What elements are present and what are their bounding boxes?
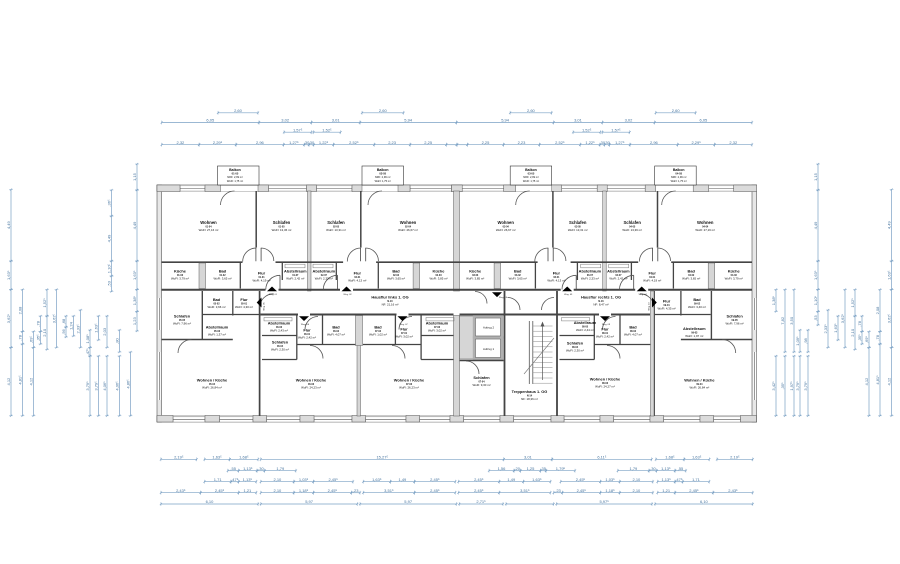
svg-text:3,42⁵: 3,42⁵ <box>771 381 776 391</box>
svg-text:WoFl: 24,27 m²: WoFl: 24,27 m² <box>595 385 615 389</box>
svg-text:Wohnen / Küche: Wohnen / Küche <box>684 378 715 383</box>
svg-text:Wohnen: Wohnen <box>497 220 514 225</box>
svg-text:WoFl: 2,42 m²: WoFl: 2,42 m² <box>609 277 627 281</box>
svg-text:3,62⁵: 3,62⁵ <box>6 313 11 323</box>
svg-text:3,01: 3,01 <box>574 118 583 123</box>
svg-text:4,81⁵: 4,81⁵ <box>875 375 880 385</box>
svg-text:Flur: Flur <box>649 271 657 276</box>
svg-text:1,71: 1,71 <box>214 477 223 482</box>
svg-text:3,51⁵: 3,51⁵ <box>384 488 394 493</box>
svg-text:WoFl: 4,35 m²: WoFl: 4,35 m² <box>658 307 676 311</box>
svg-text:Abstellraum: Abstellraum <box>579 269 602 274</box>
svg-text:4,12: 4,12 <box>29 377 34 386</box>
svg-text:3,62⁵: 3,62⁵ <box>840 313 845 323</box>
svg-text:2,23: 2,23 <box>388 140 397 145</box>
svg-text:2,45⁵: 2,45⁵ <box>430 477 440 482</box>
svg-text:2,10: 2,10 <box>633 488 642 493</box>
svg-text:Wng. 03: Wng. 03 <box>564 294 573 296</box>
svg-text:1,63⁵: 1,63⁵ <box>94 323 99 333</box>
svg-text:,47⁵: ,47⁵ <box>85 348 90 356</box>
svg-text:,23: ,23 <box>353 488 359 493</box>
svg-text:1,52⁵: 1,52⁵ <box>582 127 592 132</box>
svg-text:Aufzug 2: Aufzug 2 <box>483 326 494 330</box>
svg-text:1,38⁵: 1,38⁵ <box>771 295 776 305</box>
svg-text:1,56: 1,56 <box>498 466 507 471</box>
svg-text:Treppenhaus 1. OG: Treppenhaus 1. OG <box>512 389 548 394</box>
svg-text:2,43⁵: 2,43⁵ <box>176 488 186 493</box>
svg-text:1,03⁵: 1,03⁵ <box>605 477 615 482</box>
svg-text:WoFl: 7,96 m²: WoFl: 7,96 m² <box>726 322 744 326</box>
svg-text:WoFl: 1,75 m²: WoFl: 1,75 m² <box>375 179 391 183</box>
svg-text:WoFl: 2,44 m²: WoFl: 2,44 m² <box>576 328 594 332</box>
svg-text:WoFl: 4,07 m²: WoFl: 4,07 m² <box>624 333 642 337</box>
svg-text:Balkon: Balkon <box>377 168 389 172</box>
svg-text:Wng. 02: Wng. 02 <box>343 294 352 296</box>
svg-text:1,57⁵: 1,57⁵ <box>293 127 303 132</box>
svg-text:Wng. 10: Wng. 10 <box>649 302 651 311</box>
svg-text:Balkon: Balkon <box>229 168 241 172</box>
svg-text:2,33⁵: 2,33⁵ <box>823 324 828 334</box>
svg-text:,53: ,53 <box>813 315 818 321</box>
svg-text:1,71: 1,71 <box>692 477 701 482</box>
svg-text:2,10: 2,10 <box>274 488 283 493</box>
svg-text:1,63⁵: 1,63⁵ <box>532 477 542 482</box>
svg-text:Wng. 01: Wng. 01 <box>269 294 278 296</box>
svg-text:6,10: 6,10 <box>700 499 709 504</box>
svg-text:2,33⁵: 2,33⁵ <box>76 324 81 334</box>
svg-text:2,29⁵: 2,29⁵ <box>213 140 223 145</box>
svg-text:4,49: 4,49 <box>107 234 112 243</box>
svg-text:WoFl: 9,30 m²: WoFl: 9,30 m² <box>472 383 490 387</box>
svg-text:2,32: 2,32 <box>729 140 738 145</box>
svg-text:2,45⁵: 2,45⁵ <box>328 488 338 493</box>
svg-text:2,45⁵: 2,45⁵ <box>474 477 484 482</box>
svg-text:NRF: 2,99 m²: NRF: 2,99 m² <box>375 175 391 179</box>
svg-text:Flur: Flur <box>354 271 362 276</box>
svg-text:WoFl: 4,13 m²: WoFl: 4,13 m² <box>348 279 366 283</box>
svg-text:3,50: 3,50 <box>789 316 794 325</box>
svg-text:1,63⁵: 1,63⁵ <box>132 270 137 280</box>
svg-text:,69⁵: ,69⁵ <box>864 336 869 344</box>
svg-text:4,81⁵: 4,81⁵ <box>18 375 23 385</box>
svg-text:2,32: 2,32 <box>177 140 186 145</box>
svg-text:2,71⁵: 2,71⁵ <box>476 499 486 504</box>
svg-text:WoFl: 4,07 m²: WoFl: 4,07 m² <box>327 333 345 337</box>
svg-text:Wohnen: Wohnen <box>200 220 217 225</box>
svg-text:4,49: 4,49 <box>887 221 892 230</box>
svg-text:5,97: 5,97 <box>404 499 413 504</box>
svg-text:Flur: Flur <box>400 327 408 332</box>
svg-text:,30: ,30 <box>258 466 264 471</box>
svg-text:WoFl: 13,36 m²: WoFl: 13,36 m² <box>272 228 292 232</box>
svg-text:WoFl: 4,19 m²: WoFl: 4,19 m² <box>643 279 661 283</box>
svg-text:Aufzug 1: Aufzug 1 <box>483 347 494 351</box>
svg-text:Flur: Flur <box>601 327 609 332</box>
svg-text:1,10⁵: 1,10⁵ <box>813 295 818 305</box>
svg-text:6,10: 6,10 <box>206 499 215 504</box>
svg-text:2,60: 2,60 <box>527 108 536 113</box>
svg-text:WoFl: 2,42 m²: WoFl: 2,42 m² <box>596 335 614 339</box>
svg-text:,53: ,53 <box>107 280 112 286</box>
svg-text:,47⁵: ,47⁵ <box>231 477 239 482</box>
svg-text:1,79: 1,79 <box>276 466 285 471</box>
svg-text:Abstellraum: Abstellraum <box>683 326 706 331</box>
svg-text:Wohnen / Küche: Wohnen / Küche <box>590 377 621 382</box>
svg-text:2,45⁵: 2,45⁵ <box>577 488 587 493</box>
svg-text:Wohnen / Küche: Wohnen / Küche <box>394 378 425 383</box>
svg-text:,68: ,68 <box>61 318 66 324</box>
svg-text:,56: ,56 <box>61 328 66 334</box>
svg-text:3,01: 3,01 <box>524 454 533 459</box>
svg-text:Bad: Bad <box>374 325 382 330</box>
svg-text:2,25: 2,25 <box>424 140 433 145</box>
svg-text:1,52⁵: 1,52⁵ <box>322 127 332 132</box>
svg-text:NF: 18,36 m²: NF: 18,36 m² <box>521 397 538 401</box>
svg-text:1,49: 1,49 <box>399 477 408 482</box>
svg-text:2,45⁵: 2,45⁵ <box>689 488 699 493</box>
svg-text:2,45⁵: 2,45⁵ <box>474 488 484 493</box>
svg-text:WoFl: 3,85 m²: WoFl: 3,85 m² <box>429 277 447 281</box>
svg-text:WoFl: 2,30 m²: WoFl: 2,30 m² <box>271 348 289 352</box>
svg-text:1,63⁵: 1,63⁵ <box>6 270 11 280</box>
svg-text:1,09⁵: 1,09⁵ <box>795 336 800 346</box>
svg-text:Abstellraum: Abstellraum <box>426 321 449 326</box>
svg-text:Bad: Bad <box>514 269 522 274</box>
svg-text:Balkon: Balkon <box>673 168 685 172</box>
svg-text:Abstellraum: Abstellraum <box>607 269 630 274</box>
svg-text:2,19⁵: 2,19⁵ <box>174 454 184 459</box>
svg-text:WoFl: 2,42 m²: WoFl: 2,42 m² <box>298 336 316 340</box>
svg-text:Abstellraum: Abstellraum <box>268 321 291 326</box>
svg-text:WoFl: 27,16 m²: WoFl: 27,16 m² <box>199 228 219 232</box>
svg-text:WoFl: 2,30 m²: WoFl: 2,30 m² <box>566 349 584 353</box>
svg-text:Bad: Bad <box>693 297 701 302</box>
svg-text:1,18⁵: 1,18⁵ <box>605 488 615 493</box>
svg-text:1,15: 1,15 <box>132 172 137 181</box>
svg-text:WoFl: 3,40 m²: WoFl: 3,40 m² <box>688 305 706 309</box>
svg-text:6,11⁵: 6,11⁵ <box>597 454 606 459</box>
svg-text:Wng. 07: Wng. 07 <box>399 324 408 326</box>
svg-text:,69⁵: ,69⁵ <box>29 336 34 344</box>
svg-text:WoFl: 2,33 m²: WoFl: 2,33 m² <box>581 277 599 281</box>
svg-text:,35⁵: ,35⁵ <box>36 334 41 342</box>
svg-text:5,94: 5,94 <box>404 118 413 123</box>
svg-text:Küche: Küche <box>728 269 741 274</box>
svg-text:,80: ,80 <box>115 337 120 343</box>
svg-text:WoFl: 27,16 m²: WoFl: 27,16 m² <box>695 228 715 232</box>
svg-text:1,13⁵: 1,13⁵ <box>243 466 253 471</box>
svg-text:4,12: 4,12 <box>6 377 11 386</box>
svg-text:3,79⁵: 3,79⁵ <box>85 381 90 391</box>
svg-text:Schlafen: Schlafen <box>174 314 191 319</box>
svg-text:,78: ,78 <box>875 334 880 340</box>
svg-text:Wng. 09: Wng. 09 <box>602 324 611 326</box>
svg-text:,23: ,23 <box>555 488 561 493</box>
svg-text:Wng. 05: Wng. 05 <box>264 302 266 311</box>
svg-text:1,10⁵: 1,10⁵ <box>107 263 112 273</box>
svg-text:2,08: 2,08 <box>18 306 23 315</box>
svg-text:3,62⁵: 3,62⁵ <box>887 313 892 323</box>
svg-text:1,38⁵: 1,38⁵ <box>132 295 137 305</box>
svg-text:NF: 21,16 m²: NF: 21,16 m² <box>382 303 399 307</box>
svg-text:WoFl: 4,30 m²: WoFl: 4,30 m² <box>235 305 253 309</box>
svg-text:2,45⁵: 2,45⁵ <box>430 488 440 493</box>
svg-text:Bad: Bad <box>392 269 400 274</box>
svg-text:1,63⁵: 1,63⁵ <box>813 270 818 280</box>
svg-text:,35⁵: ,35⁵ <box>857 334 862 342</box>
svg-text:6,05: 6,05 <box>700 118 709 123</box>
svg-text:Abstellraum: Abstellraum <box>574 320 597 325</box>
svg-text:1,79: 1,79 <box>630 466 639 471</box>
svg-text:Küche: Küche <box>433 269 446 274</box>
svg-text:2,96: 2,96 <box>256 140 265 145</box>
svg-text:,78: ,78 <box>857 320 862 326</box>
svg-text:1,57⁵: 1,57⁵ <box>611 127 621 132</box>
svg-text:3,51⁵: 3,51⁵ <box>520 488 530 493</box>
svg-text:4,86⁵: 4,86⁵ <box>126 379 131 389</box>
svg-text:5,97⁵: 5,97⁵ <box>599 499 609 504</box>
svg-text:2,45⁵: 2,45⁵ <box>328 477 338 482</box>
svg-text:1,18⁵: 1,18⁵ <box>299 488 309 493</box>
svg-text:WoFl: 1,75 m²: WoFl: 1,75 m² <box>671 179 687 183</box>
svg-text:Flur: Flur <box>303 328 311 333</box>
svg-text:1,13⁵: 1,13⁵ <box>661 466 671 471</box>
svg-text:Bad: Bad <box>629 325 637 330</box>
svg-text:WoFl: 4,13 m²: WoFl: 4,13 m² <box>547 279 565 283</box>
svg-text:WoFl: 26,67 m²: WoFl: 26,67 m² <box>398 228 418 232</box>
svg-text:Küche: Küche <box>174 269 187 274</box>
svg-text:Schlafen: Schlafen <box>473 375 490 380</box>
svg-text:Flur: Flur <box>663 299 671 304</box>
svg-text:Schlafen: Schlafen <box>327 220 345 225</box>
svg-text:5,94: 5,94 <box>501 118 510 123</box>
svg-text:3,01: 3,01 <box>332 118 341 123</box>
svg-text:2,25: 2,25 <box>482 140 491 145</box>
svg-text:1,27⁵: 1,27⁵ <box>289 140 299 145</box>
svg-text:4,06⁵: 4,06⁵ <box>115 381 120 391</box>
svg-text:,55: ,55 <box>230 466 236 471</box>
svg-text:1,63⁵: 1,63⁵ <box>372 477 382 482</box>
svg-text:NF: 8,47 m²: NF: 8,47 m² <box>593 303 608 307</box>
svg-text:2,29⁵: 2,29⁵ <box>691 140 701 145</box>
svg-text:4,49: 4,49 <box>132 221 137 230</box>
svg-text:,78: ,78 <box>36 320 41 326</box>
svg-text:WoFl: 13,36 m²: WoFl: 13,36 m² <box>622 228 642 232</box>
svg-text:2,60: 2,60 <box>379 108 388 113</box>
svg-text:1,63⁵: 1,63⁵ <box>212 454 222 459</box>
svg-text:4,12: 4,12 <box>864 377 869 386</box>
svg-text:4,49: 4,49 <box>6 221 11 230</box>
svg-text:4,12: 4,12 <box>887 377 892 386</box>
svg-text:Bad: Bad <box>332 325 340 330</box>
svg-text:2,10: 2,10 <box>42 328 47 337</box>
svg-text:2,60: 2,60 <box>234 108 243 113</box>
svg-text:Schlafen: Schlafen <box>569 220 587 225</box>
svg-text:WoFl: 1,97 m²: WoFl: 1,97 m² <box>685 334 703 338</box>
svg-text:1,63⁵: 1,63⁵ <box>692 454 702 459</box>
svg-text:WoFl: 3,02 m²: WoFl: 3,02 m² <box>395 335 413 339</box>
svg-text:1,13⁵: 1,13⁵ <box>661 477 671 482</box>
svg-text:Wng. 04: Wng. 04 <box>639 294 648 296</box>
svg-text:01-05: 01-05 <box>232 172 239 176</box>
svg-text:Schlafen: Schlafen <box>567 341 584 346</box>
svg-text:1,13⁵: 1,13⁵ <box>243 477 253 482</box>
svg-text:WoFl: 3,79 m²: WoFl: 3,79 m² <box>725 277 743 281</box>
svg-text:1,21: 1,21 <box>244 488 253 493</box>
svg-text:3,79⁵: 3,79⁵ <box>803 381 808 391</box>
svg-text:1,24: 1,24 <box>69 321 74 330</box>
svg-text:02-05: 02-05 <box>379 172 386 176</box>
svg-text:6,05: 6,05 <box>206 118 215 123</box>
svg-text:1,21: 1,21 <box>662 488 671 493</box>
svg-text:WoFl: 3,65 m²: WoFl: 3,65 m² <box>682 277 700 281</box>
svg-text:3,79⁵: 3,79⁵ <box>795 381 800 391</box>
svg-text:WoFl: 13,31 m²: WoFl: 13,31 m² <box>568 228 588 232</box>
svg-text:WoFl: 3,65 m²: WoFl: 3,65 m² <box>213 277 231 281</box>
svg-text:Wohnen / Küche: Wohnen / Küche <box>296 378 327 383</box>
svg-text:,35⁵: ,35⁵ <box>780 382 785 390</box>
svg-text:WoFl: 2,42 m²: WoFl: 2,42 m² <box>286 277 304 281</box>
svg-text:,55: ,55 <box>678 466 684 471</box>
svg-text:4,06⁵: 4,06⁵ <box>102 381 107 391</box>
svg-text:,36⁵: ,36⁵ <box>107 199 112 207</box>
svg-text:4,49: 4,49 <box>813 221 818 230</box>
svg-text:Schlafen: Schlafen <box>272 340 289 345</box>
svg-text:2,45⁵: 2,45⁵ <box>576 477 586 482</box>
svg-text:2,96: 2,96 <box>650 140 659 145</box>
svg-text:Bad: Bad <box>213 297 221 302</box>
svg-text:2,52⁵: 2,52⁵ <box>555 140 565 145</box>
svg-text:Wohnen: Wohnen <box>400 220 417 225</box>
svg-text:Wng. 06: Wng. 06 <box>301 324 310 326</box>
svg-text:2,08: 2,08 <box>875 306 880 315</box>
svg-text:Schlafen: Schlafen <box>623 220 641 225</box>
svg-text:WoFl: 1,75 m²: WoFl: 1,75 m² <box>523 179 539 183</box>
svg-text:2,60: 2,60 <box>672 108 681 113</box>
svg-text:Abstellraum: Abstellraum <box>313 269 336 274</box>
svg-text:1,97⁵: 1,97⁵ <box>789 381 794 391</box>
svg-text:2,03: 2,03 <box>102 327 107 336</box>
svg-text:NRF: 2,99 m²: NRF: 2,99 m² <box>523 175 539 179</box>
svg-text:WoFl: 13,31 m²: WoFl: 13,31 m² <box>326 228 346 232</box>
svg-text:WoFl: 26,84 m²: WoFl: 26,84 m² <box>202 386 222 390</box>
svg-text:WoFl: 24,23 m²: WoFl: 24,23 m² <box>301 386 321 390</box>
svg-text:Wng. 15: Wng. 15 <box>499 297 508 299</box>
svg-text:1,15: 1,15 <box>813 172 818 181</box>
svg-text:WoFl: 1,75 m²: WoFl: 1,75 m² <box>227 179 243 183</box>
svg-text:Flur: Flur <box>240 297 248 302</box>
svg-text:WoFl: 3,79 m²: WoFl: 3,79 m² <box>171 277 189 281</box>
svg-text:NRF: 2,99 m²: NRF: 2,99 m² <box>671 175 687 179</box>
svg-text:1,22⁵: 1,22⁵ <box>319 140 329 145</box>
svg-text:2,43⁵: 2,43⁵ <box>728 488 738 493</box>
svg-text:WoFl: 26,23 m²: WoFl: 26,23 m² <box>399 386 419 390</box>
svg-text:Bad: Bad <box>688 269 696 274</box>
svg-text:WoFl: 1,37 m²: WoFl: 1,37 m² <box>208 333 226 337</box>
svg-text:WoFl: 7,96 m²: WoFl: 7,96 m² <box>173 322 191 326</box>
svg-text:Abstellraum: Abstellraum <box>284 269 307 274</box>
svg-text:1,63⁵: 1,63⁵ <box>833 323 838 333</box>
svg-text:,20: ,20 <box>514 466 520 471</box>
svg-text:WoFl: 1,02 m²: WoFl: 1,02 m² <box>369 333 387 337</box>
svg-text:03-05: 03-05 <box>528 172 535 176</box>
svg-text:1,63⁵: 1,63⁵ <box>887 270 892 280</box>
svg-text:1,52⁵: 1,52⁵ <box>42 298 47 308</box>
svg-text:04-05: 04-05 <box>675 172 682 176</box>
svg-text:2,19⁵: 2,19⁵ <box>730 454 740 459</box>
svg-text:Flur: Flur <box>258 271 266 276</box>
svg-text:1,23: 1,23 <box>132 317 137 326</box>
svg-text:3,02: 3,02 <box>625 118 634 123</box>
svg-text:2,52⁵: 2,52⁵ <box>349 140 359 145</box>
svg-text:,98: ,98 <box>803 337 808 343</box>
svg-text:Wohnen: Wohnen <box>697 220 714 225</box>
svg-text:Hausflur rechts 1. OG: Hausflur rechts 1. OG <box>581 294 621 299</box>
svg-text:Balkon: Balkon <box>525 168 537 172</box>
svg-text:WoFl: 3,65 m²: WoFl: 3,65 m² <box>509 277 527 281</box>
svg-text:WoFl: 4,19 m²: WoFl: 4,19 m² <box>252 279 270 283</box>
svg-text:3,62⁵: 3,62⁵ <box>52 313 57 323</box>
svg-text:Schlafen: Schlafen <box>273 220 291 225</box>
svg-text:Flur: Flur <box>553 271 561 276</box>
svg-text:3,02: 3,02 <box>281 118 290 123</box>
svg-text:7,82: 7,82 <box>780 316 785 325</box>
svg-text:3,79⁵: 3,79⁵ <box>94 381 99 391</box>
svg-text:,78: ,78 <box>18 334 23 340</box>
svg-text:1,79⁵: 1,79⁵ <box>556 466 566 471</box>
svg-text:1,27⁵: 1,27⁵ <box>615 140 625 145</box>
svg-text:WoFl: 26,84 m²: WoFl: 26,84 m² <box>690 386 710 390</box>
svg-text:2,10: 2,10 <box>274 477 283 482</box>
svg-text:WoFl: 3,66 m²: WoFl: 3,66 m² <box>207 305 225 309</box>
svg-text:1,08⁵: 1,08⁵ <box>85 334 90 344</box>
svg-text:1,68⁵: 1,68⁵ <box>239 454 249 459</box>
svg-text:,47⁵: ,47⁵ <box>675 477 683 482</box>
svg-text:Abstellraum: Abstellraum <box>206 325 229 330</box>
svg-text:Wohnen / Küche: Wohnen / Küche <box>197 378 228 383</box>
svg-text:Küche: Küche <box>469 269 482 274</box>
svg-text:WoFl: 3,02 m²: WoFl: 3,02 m² <box>428 329 446 333</box>
svg-text:2,10: 2,10 <box>633 477 642 482</box>
svg-text:Bad: Bad <box>219 269 227 274</box>
svg-text:WoFl: 3,65 m²: WoFl: 3,65 m² <box>387 277 405 281</box>
svg-text:15,27⁵: 15,27⁵ <box>376 454 388 459</box>
svg-text:,30: ,30 <box>650 466 656 471</box>
svg-text:WoFl: 2,43 m²: WoFl: 2,43 m² <box>270 329 288 333</box>
svg-text:1,25: 1,25 <box>527 466 536 471</box>
svg-text:Hausflur links 1. OG: Hausflur links 1. OG <box>371 294 408 299</box>
svg-text:5,97: 5,97 <box>305 499 314 504</box>
svg-text:2,23: 2,23 <box>518 140 527 145</box>
svg-text:Schlafen: Schlafen <box>726 314 743 319</box>
svg-text:1,52⁵: 1,52⁵ <box>850 298 855 308</box>
svg-text:2,10: 2,10 <box>850 328 855 337</box>
svg-text:WoFl: 3,85 m²: WoFl: 3,85 m² <box>466 277 484 281</box>
svg-text:2,45⁵: 2,45⁵ <box>215 488 225 493</box>
svg-text:NRF: 2,99 m²: NRF: 2,99 m² <box>227 175 243 179</box>
svg-text:1,22⁵: 1,22⁵ <box>585 140 595 145</box>
svg-text:1,03⁵: 1,03⁵ <box>299 477 309 482</box>
svg-text:WoFl: 2,33 m²: WoFl: 2,33 m² <box>315 277 333 281</box>
svg-text:1,68⁵: 1,68⁵ <box>665 454 675 459</box>
svg-text:WoFl: 26,67 m²: WoFl: 26,67 m² <box>496 228 516 232</box>
svg-text:1,49: 1,49 <box>507 477 516 482</box>
